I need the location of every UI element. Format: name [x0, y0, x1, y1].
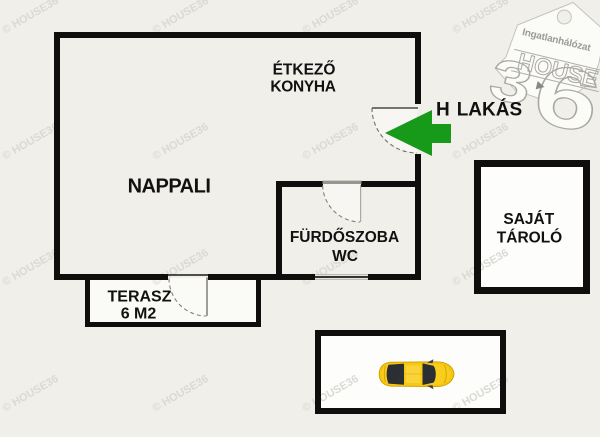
svg-text:KONYHA: KONYHA	[270, 79, 335, 96]
svg-text:FÜRDŐSZOBA: FÜRDŐSZOBA	[290, 228, 399, 246]
svg-text:TÁROLÓ: TÁROLÓ	[497, 229, 562, 247]
svg-text:ÉTKEZŐ: ÉTKEZŐ	[273, 60, 336, 78]
svg-text:H LAKÁS: H LAKÁS	[436, 99, 522, 121]
svg-text:TERASZ: TERASZ	[108, 289, 172, 306]
svg-text:WC: WC	[332, 248, 358, 265]
svg-text:NAPPALI: NAPPALI	[128, 176, 211, 198]
svg-text:SAJÁT: SAJÁT	[503, 211, 554, 228]
svg-text:6 M2: 6 M2	[121, 306, 157, 323]
